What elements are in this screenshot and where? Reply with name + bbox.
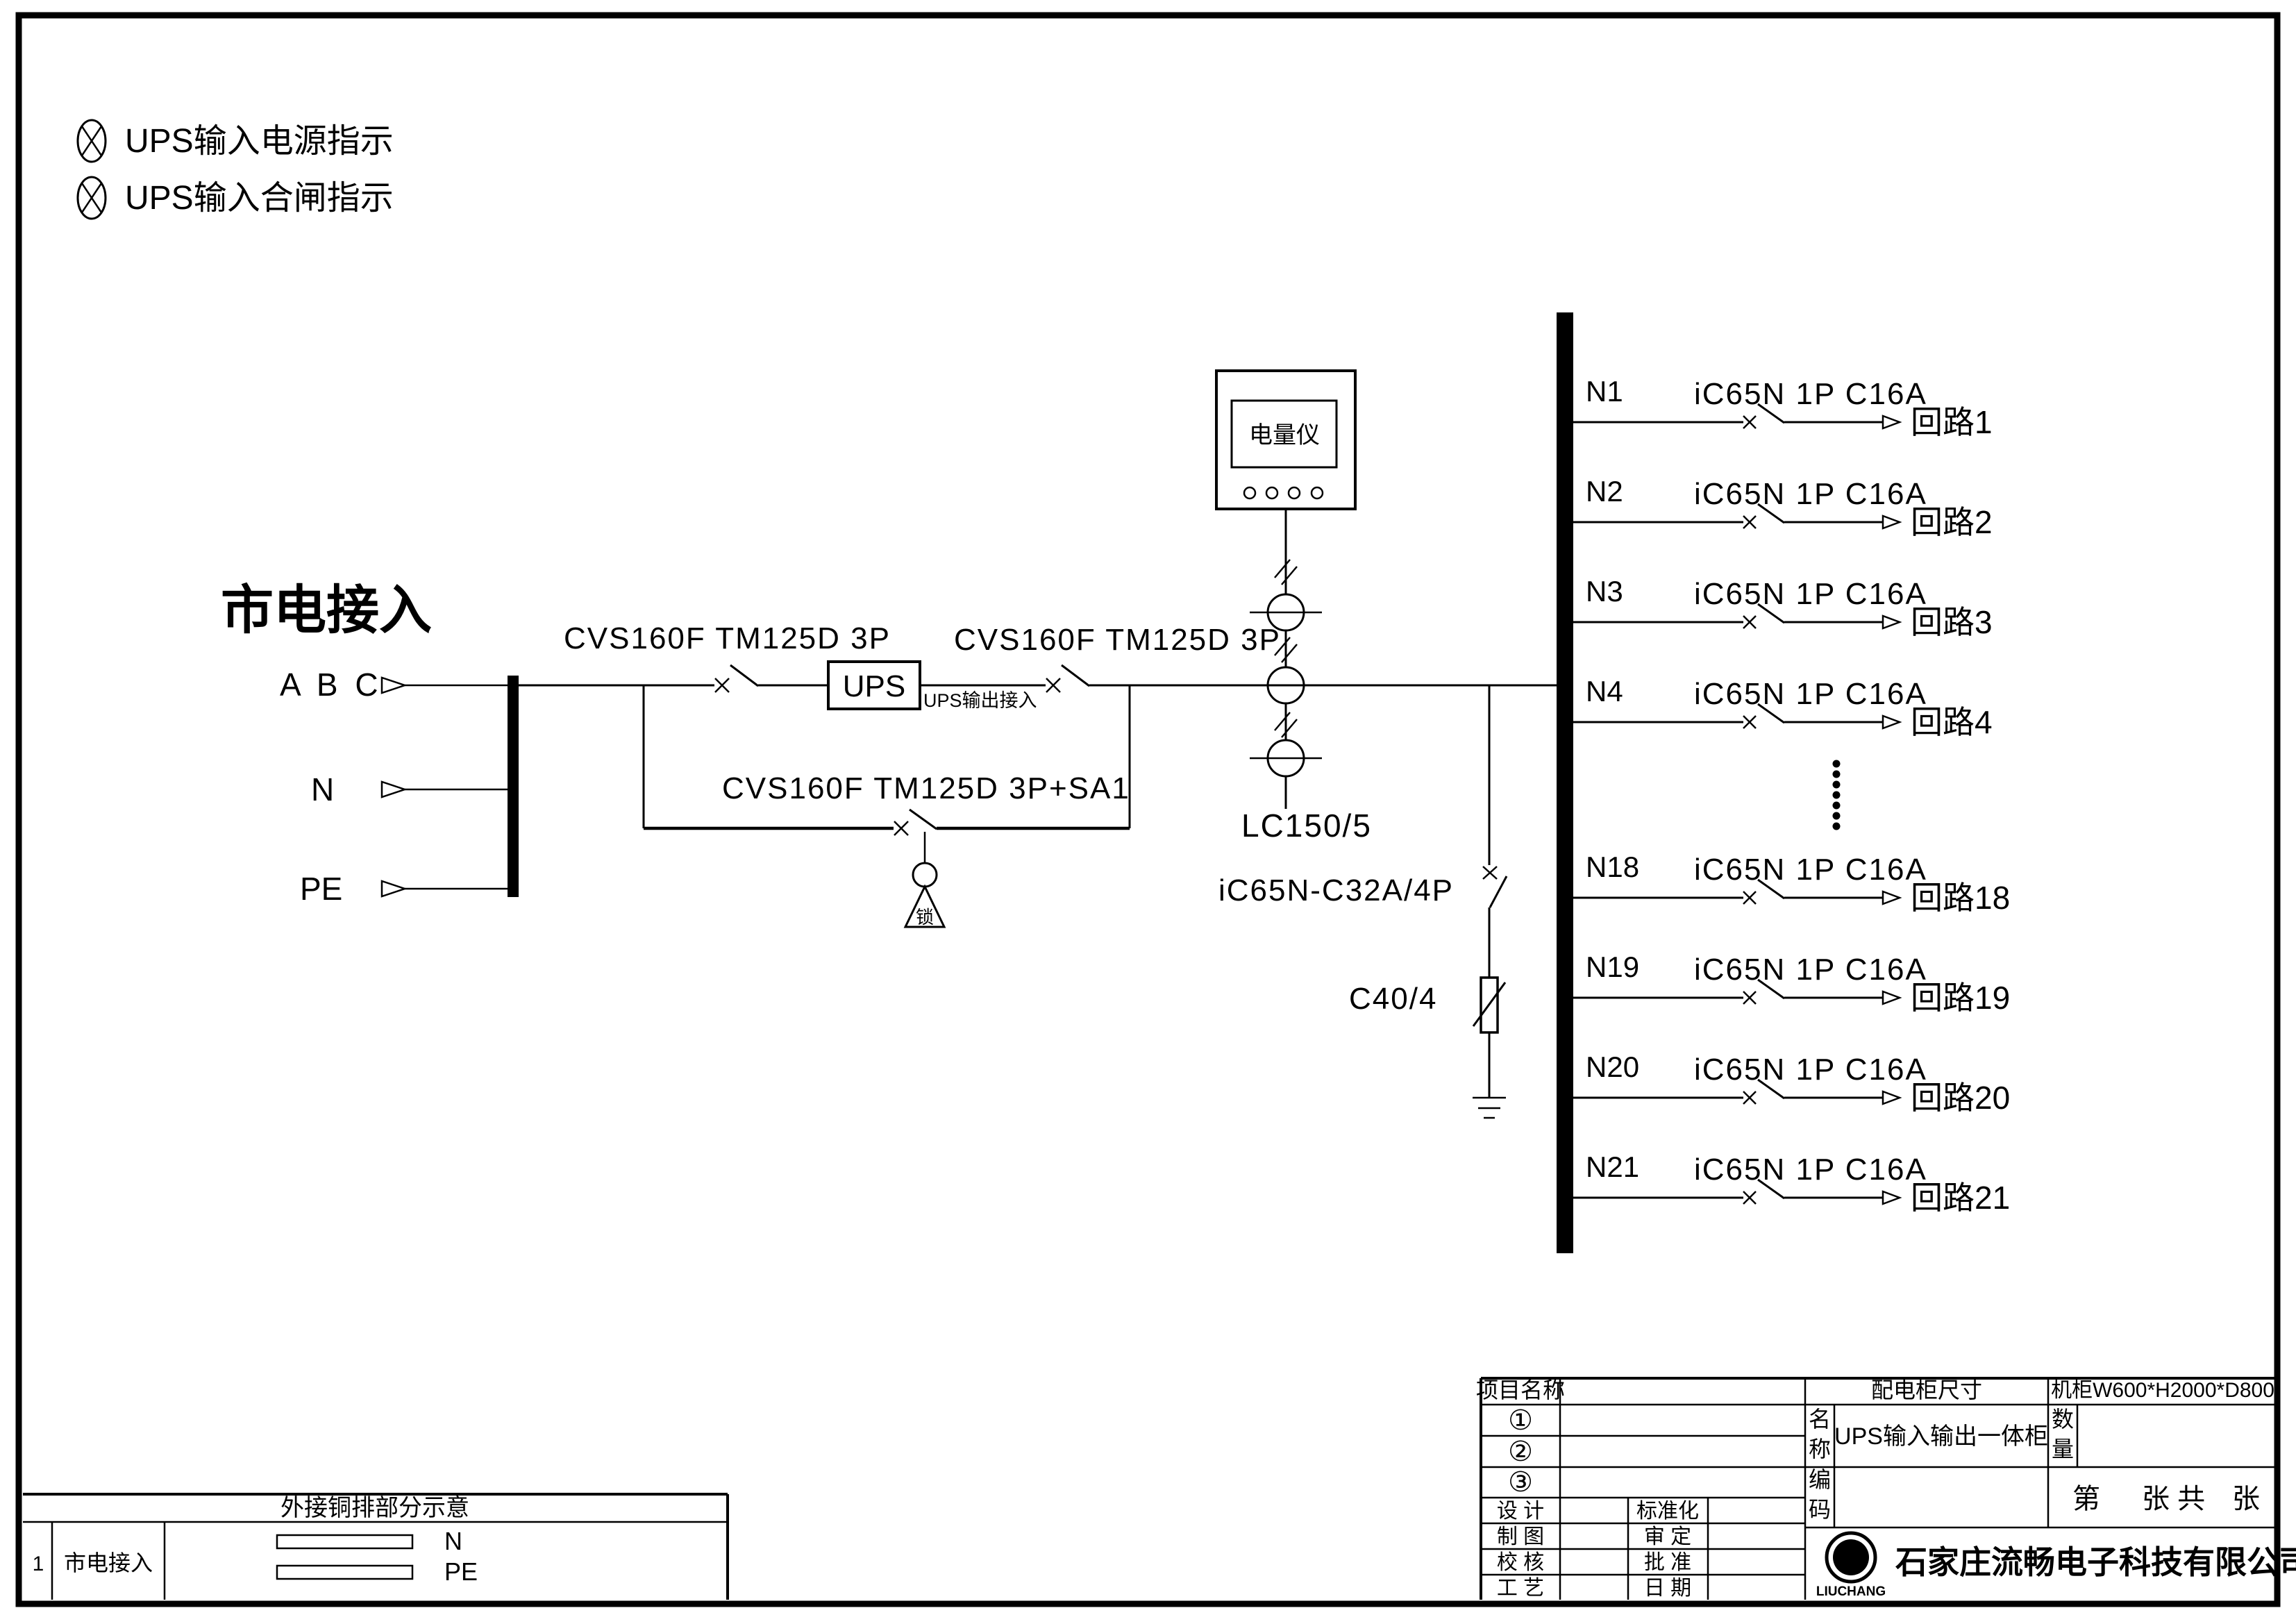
feeder-arrow-icon — [1883, 991, 1900, 1004]
sheet-mid-label: 张 共 — [2142, 1484, 2205, 1514]
lamp-icon — [78, 120, 106, 162]
ct-label: LC150/5 — [1241, 807, 1372, 844]
project-name-label: 项目名称 — [1476, 1378, 1565, 1403]
copper-bar-n-label: N — [444, 1527, 462, 1555]
feeder-id: N20 — [1586, 1050, 1639, 1083]
pe-label: PE — [300, 871, 342, 907]
legend-label-power: UPS输入电源指示 — [125, 123, 394, 160]
schematic-page: UPS输入电源指示 UPS输入合闸指示 市电接入 A B C N PE CVS1… — [0, 0, 2296, 1624]
name-label: 名称 — [1809, 1407, 1831, 1462]
padlock-icon: 锁 — [905, 832, 944, 928]
breaker2-label: CVS160F TM125D 3P — [954, 623, 1281, 657]
feeder-circuit-label: 回路2 — [1911, 504, 1993, 540]
legend: UPS输入电源指示 UPS输入合闸指示 — [78, 120, 394, 219]
feeder-breaker-label: iC65N 1P C16A — [1694, 677, 1927, 711]
spd-branch: iC65N-C32A/4P C40/4 — [1218, 685, 1507, 1118]
feeder-row: N2iC65N 1P C16A回路2 — [1573, 475, 1993, 540]
spd-switch-label: iC65N-C32A/4P — [1218, 873, 1454, 907]
ups-output-note: UPS输出接入 — [923, 690, 1037, 711]
bypass-breaker-label: CVS160F TM125D 3P+SA1 — [722, 771, 1130, 805]
feeder-id: N4 — [1586, 675, 1623, 708]
spd-switch-icon — [1483, 867, 1507, 907]
sheet-no-label: 第 — [2072, 1484, 2100, 1514]
feeder-breaker-label: iC65N 1P C16A — [1694, 953, 1927, 987]
feeder-breaker-label: iC65N 1P C16A — [1694, 853, 1927, 887]
meter-button-icon — [1312, 487, 1323, 499]
qty-label: 数量 — [2052, 1407, 2074, 1462]
code-label: 编码 — [1809, 1467, 1831, 1522]
feeder-row: N4iC65N 1P C16A回路4 — [1573, 675, 1993, 740]
main-circuit: CVS160F TM125D 3P UPS UPS输出接入 CVS160F TM… — [519, 371, 1557, 1118]
input-busbar — [508, 676, 519, 897]
design-label: 设 计 — [1497, 1500, 1544, 1523]
feeder-arrow-icon — [1883, 1191, 1900, 1204]
copper-bar-pe-label: PE — [444, 1557, 478, 1586]
feeder-id: N1 — [1586, 375, 1623, 408]
feeder-id: N21 — [1586, 1150, 1639, 1183]
meter-button-icon — [1266, 487, 1277, 499]
feeder-arrow-icon — [1883, 1091, 1900, 1104]
logo-text: LIUCHANG — [1816, 1584, 1886, 1599]
feeder-breaker-label: iC65N 1P C16A — [1694, 477, 1927, 511]
feeder-circuit-label: 回路18 — [1911, 880, 2010, 916]
process-label: 工 艺 — [1497, 1577, 1544, 1600]
sheet-end-label: 张 — [2232, 1484, 2260, 1514]
source-title: 市电接入 — [221, 581, 432, 640]
feeder-id: N2 — [1586, 475, 1623, 508]
phase-arrow-icon — [382, 678, 405, 693]
meter-button-icon — [1289, 487, 1300, 499]
draft-label: 制 图 — [1497, 1525, 1544, 1548]
company-logo: G LIUCHANG — [1816, 1533, 1886, 1599]
feeder-arrow-icon — [1883, 716, 1900, 728]
ups-label: UPS — [843, 669, 905, 703]
neutral-label: N — [311, 771, 334, 807]
feeder-circuit-label: 回路19 — [1911, 980, 2010, 1016]
feeder-row: N20iC65N 1P C16A回路20 — [1573, 1050, 2010, 1116]
row2-label: ② — [1508, 1437, 1533, 1467]
copper-bar-pe — [277, 1566, 412, 1579]
feeder-circuit-label: 回路3 — [1911, 604, 1993, 640]
meter-button-icon — [1244, 487, 1255, 499]
approve-label: 批 准 — [1644, 1551, 1691, 1574]
feeder-breaker-label: iC65N 1P C16A — [1694, 377, 1927, 411]
feeder-circuit-label: 回路1 — [1911, 404, 1993, 440]
cabinet-size-value: 机柜W600*H2000*D800 — [2051, 1379, 2274, 1402]
ground-icon — [1473, 1098, 1506, 1118]
ellipsis-dots-icon — [1833, 760, 1841, 830]
bypass-breaker-icon — [894, 810, 937, 835]
neutral-arrow-icon — [382, 782, 405, 797]
review-label: 审 定 — [1644, 1525, 1691, 1548]
feeder-circuit-label: 回路4 — [1911, 704, 1993, 740]
logo-letter: G — [1840, 1541, 1863, 1574]
standard-label: 标准化 — [1636, 1500, 1699, 1523]
output-busbar — [1557, 312, 1573, 1253]
spd-label: C40/4 — [1349, 982, 1437, 1016]
legend-label-closed: UPS输入合闸指示 — [125, 180, 394, 217]
copper-row-label: 市电接入 — [64, 1550, 153, 1575]
meter-label: 电量仪 — [1249, 422, 1320, 449]
feeder-arrow-icon — [1883, 416, 1900, 428]
feeder-row: N3iC65N 1P C16A回路3 — [1573, 575, 1993, 640]
feeder-id: N19 — [1586, 951, 1639, 983]
date-label: 日 期 — [1644, 1577, 1691, 1600]
feeder-breaker-label: iC65N 1P C16A — [1694, 577, 1927, 611]
feeder-arrow-icon — [1883, 891, 1900, 904]
lamp-icon — [78, 177, 106, 219]
feeder-circuits: N1iC65N 1P C16A回路1N2iC65N 1P C16A回路2N3iC… — [1573, 375, 2010, 1216]
copper-bar-n — [277, 1535, 412, 1548]
breaker1-icon — [715, 665, 758, 692]
feeder-row: N21iC65N 1P C16A回路21 — [1573, 1150, 2010, 1216]
feeder-circuit-label: 回路20 — [1911, 1080, 2010, 1116]
feeder-arrow-icon — [1883, 516, 1900, 528]
check-label: 校 核 — [1497, 1551, 1544, 1574]
feeder-id: N3 — [1586, 575, 1623, 608]
breaker2-icon — [1046, 665, 1089, 692]
breaker1-label: CVS160F TM125D 3P — [564, 621, 891, 655]
feeder-breaker-label: iC65N 1P C16A — [1694, 1053, 1927, 1087]
feeder-row: N18iC65N 1P C16A回路18 — [1573, 851, 2010, 916]
feeder-row: N1iC65N 1P C16A回路1 — [1573, 375, 1993, 440]
copper-bar-table: 外接铜排部分示意 1 市电接入 N PE — [23, 1494, 728, 1600]
current-transformers: LC150/5 — [1241, 509, 1372, 844]
feeder-id: N18 — [1586, 851, 1639, 883]
copper-row-no: 1 — [33, 1552, 44, 1575]
copper-table-header: 外接铜排部分示意 — [280, 1495, 469, 1521]
title-block: 项目名称 配电柜尺寸 机柜W600*H2000*D800 ① ② ③ 设 计 标… — [1476, 1378, 2296, 1600]
drawing-border — [19, 15, 2277, 1604]
feeder-row: N19iC65N 1P C16A回路19 — [1573, 951, 2010, 1016]
power-meter: 电量仪 — [1216, 371, 1355, 509]
feeder-breaker-label: iC65N 1P C16A — [1694, 1153, 1927, 1187]
padlock-label: 锁 — [916, 907, 934, 928]
name-value: UPS输入输出一体柜 — [1834, 1423, 2048, 1450]
pe-arrow-icon — [382, 881, 405, 896]
bypass-branch: CVS160F TM125D 3P+SA1 锁 — [644, 685, 1130, 928]
feeder-arrow-icon — [1883, 616, 1900, 628]
company-name: 石家庄流畅电子科技有限公司 — [1895, 1544, 2296, 1580]
phase-label: A B C — [280, 667, 383, 703]
row3-label: ③ — [1508, 1467, 1533, 1498]
cabinet-size-label: 配电柜尺寸 — [1871, 1378, 1982, 1403]
row1-label: ① — [1508, 1405, 1533, 1436]
feeder-circuit-label: 回路21 — [1911, 1180, 2010, 1216]
mains-source: 市电接入 A B C N PE — [221, 581, 519, 907]
